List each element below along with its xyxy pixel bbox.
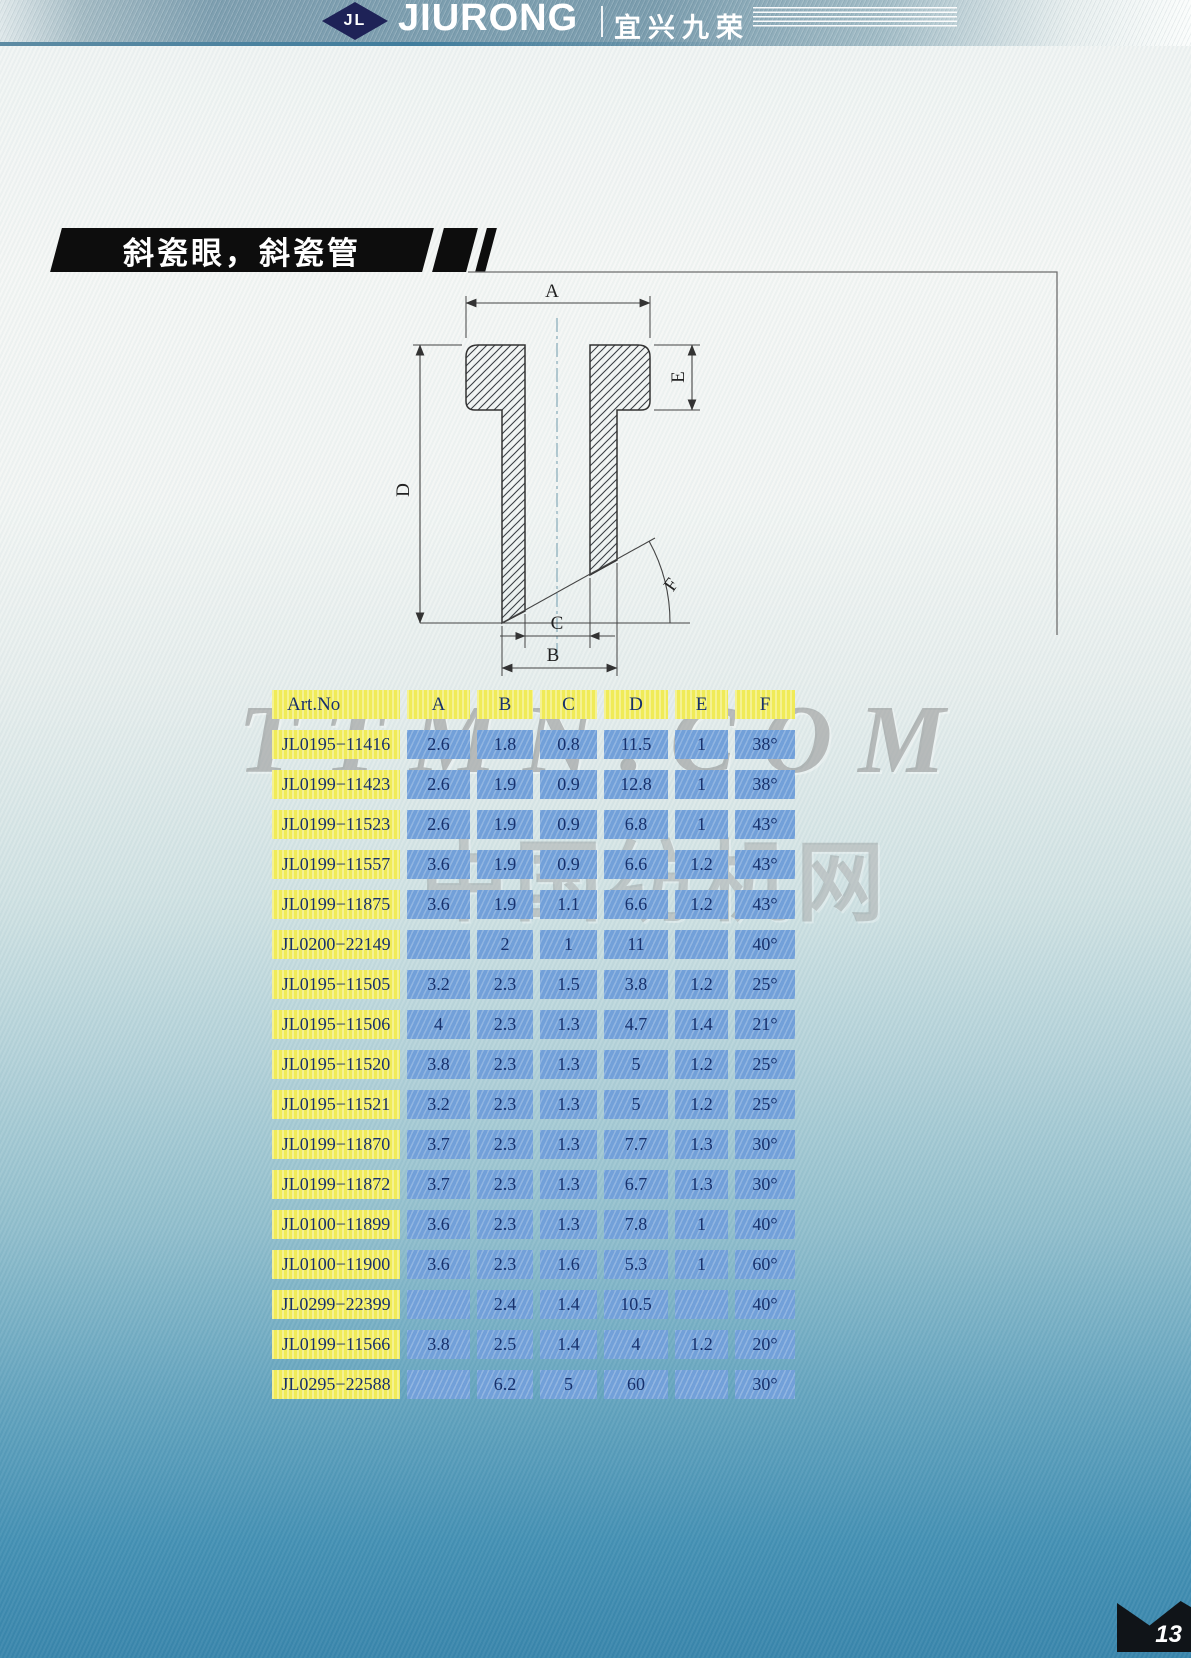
value-cell: 30° bbox=[735, 1370, 795, 1399]
value-cell: 2.6 bbox=[407, 810, 470, 839]
value-cell: 2.3 bbox=[477, 970, 533, 999]
value-cell: 25° bbox=[735, 1050, 795, 1079]
value-cell: 7.8 bbox=[604, 1210, 668, 1239]
value-cell: 2.6 bbox=[407, 770, 470, 799]
value-cell: 20° bbox=[735, 1330, 795, 1359]
column-header-b: B bbox=[477, 690, 533, 719]
value-cell bbox=[675, 1370, 728, 1399]
value-cell: 4 bbox=[604, 1330, 668, 1359]
dim-label-b: B bbox=[547, 645, 560, 666]
artno-cell: JL0199−11423 bbox=[272, 770, 400, 799]
dim-label-a: A bbox=[545, 281, 559, 302]
artno-cell: JL0100−11900 bbox=[272, 1250, 400, 1279]
value-cell: 2.6 bbox=[407, 730, 470, 759]
artno-cell: JL0199−11872 bbox=[272, 1170, 400, 1199]
artno-cell: JL0100−11899 bbox=[272, 1210, 400, 1239]
column-header-d: D bbox=[604, 690, 668, 719]
value-cell: 1.9 bbox=[477, 810, 533, 839]
value-cell: 2.5 bbox=[477, 1330, 533, 1359]
value-cell: 2.3 bbox=[477, 1210, 533, 1239]
value-cell: 2.3 bbox=[477, 1170, 533, 1199]
value-cell: 5 bbox=[604, 1050, 668, 1079]
column-header-c: C bbox=[540, 690, 597, 719]
value-cell: 0.9 bbox=[540, 850, 597, 879]
dim-label-c: C bbox=[551, 613, 564, 634]
page-number: 13 bbox=[1155, 1621, 1182, 1649]
value-cell: 6.7 bbox=[604, 1170, 668, 1199]
value-cell: 1.2 bbox=[675, 850, 728, 879]
artno-cell: JL0199−11523 bbox=[272, 810, 400, 839]
value-cell: 60 bbox=[604, 1370, 668, 1399]
value-cell bbox=[407, 1370, 470, 1399]
value-cell: 1.3 bbox=[540, 1130, 597, 1159]
value-cell: 2.3 bbox=[477, 1010, 533, 1039]
value-cell: 6.6 bbox=[604, 850, 668, 879]
value-cell: 6.2 bbox=[477, 1370, 533, 1399]
value-cell: 1.1 bbox=[540, 890, 597, 919]
value-cell: 11.5 bbox=[604, 730, 668, 759]
value-cell: 1.3 bbox=[675, 1170, 728, 1199]
artno-cell: JL0199−11875 bbox=[272, 890, 400, 919]
value-cell: 1.9 bbox=[477, 850, 533, 879]
value-cell: 3.7 bbox=[407, 1130, 470, 1159]
value-cell: 4.7 bbox=[604, 1010, 668, 1039]
value-cell: 10.5 bbox=[604, 1290, 668, 1319]
value-cell: 40° bbox=[735, 1290, 795, 1319]
artno-cell: JL0199−11870 bbox=[272, 1130, 400, 1159]
value-cell: 5.3 bbox=[604, 1250, 668, 1279]
value-cell: 0.9 bbox=[540, 770, 597, 799]
frame-line bbox=[468, 272, 1057, 635]
eyelet-section-right bbox=[590, 345, 650, 575]
value-cell: 1 bbox=[675, 1250, 728, 1279]
value-cell: 3.6 bbox=[407, 1250, 470, 1279]
value-cell: 3.8 bbox=[604, 970, 668, 999]
value-cell: 3.7 bbox=[407, 1170, 470, 1199]
value-cell: 5 bbox=[604, 1090, 668, 1119]
value-cell: 0.9 bbox=[540, 810, 597, 839]
value-cell: 6.6 bbox=[604, 890, 668, 919]
value-cell: 2.3 bbox=[477, 1250, 533, 1279]
value-cell: 40° bbox=[735, 930, 795, 959]
dim-label-d: D bbox=[393, 483, 414, 497]
value-cell: 3.6 bbox=[407, 890, 470, 919]
value-cell: 1 bbox=[675, 1210, 728, 1239]
value-cell: 2.3 bbox=[477, 1130, 533, 1159]
value-cell: 5 bbox=[540, 1370, 597, 1399]
value-cell: 1.9 bbox=[477, 890, 533, 919]
value-cell: 21° bbox=[735, 1010, 795, 1039]
value-cell: 3.2 bbox=[407, 970, 470, 999]
value-cell: 25° bbox=[735, 1090, 795, 1119]
dim-label-e: E bbox=[668, 371, 689, 383]
value-cell: 43° bbox=[735, 810, 795, 839]
value-cell: 43° bbox=[735, 850, 795, 879]
dim-label-f: F bbox=[660, 574, 683, 595]
value-cell: 2.3 bbox=[477, 1090, 533, 1119]
value-cell: 1 bbox=[675, 730, 728, 759]
value-cell: 38° bbox=[735, 770, 795, 799]
artno-cell: JL0195−11505 bbox=[272, 970, 400, 999]
value-cell: 2 bbox=[477, 930, 533, 959]
eyelet-section-left bbox=[466, 345, 525, 623]
value-cell bbox=[675, 930, 728, 959]
value-cell: 1.2 bbox=[675, 1090, 728, 1119]
artno-cell: JL0195−11521 bbox=[272, 1090, 400, 1119]
spec-table: Art.NoABCDEFJL0195−114162.61.80.811.5138… bbox=[272, 690, 795, 1399]
value-cell: 1.4 bbox=[540, 1330, 597, 1359]
value-cell: 11 bbox=[604, 930, 668, 959]
value-cell: 1.9 bbox=[477, 770, 533, 799]
value-cell: 3.6 bbox=[407, 1210, 470, 1239]
artno-cell: JL0199−11557 bbox=[272, 850, 400, 879]
artno-cell: JL0195−11506 bbox=[272, 1010, 400, 1039]
column-header-f: F bbox=[735, 690, 795, 719]
value-cell: 1.3 bbox=[540, 1090, 597, 1119]
value-cell: 2.3 bbox=[477, 1050, 533, 1079]
artno-cell: JL0200−22149 bbox=[272, 930, 400, 959]
value-cell: 3.8 bbox=[407, 1050, 470, 1079]
value-cell: 6.8 bbox=[604, 810, 668, 839]
value-cell bbox=[407, 930, 470, 959]
value-cell: 4 bbox=[407, 1010, 470, 1039]
value-cell: 1.2 bbox=[675, 890, 728, 919]
value-cell: 25° bbox=[735, 970, 795, 999]
artno-cell: JL0295−22588 bbox=[272, 1370, 400, 1399]
technical-drawing: F A D E C B bbox=[0, 0, 1191, 740]
artno-cell: JL0195−11416 bbox=[272, 730, 400, 759]
value-cell: 1 bbox=[675, 770, 728, 799]
artno-cell: JL0195−11520 bbox=[272, 1050, 400, 1079]
value-cell: 1.5 bbox=[540, 970, 597, 999]
value-cell: 1.3 bbox=[540, 1050, 597, 1079]
value-cell bbox=[675, 1290, 728, 1319]
value-cell: 3.2 bbox=[407, 1090, 470, 1119]
value-cell: 1.3 bbox=[540, 1210, 597, 1239]
value-cell: 1.3 bbox=[675, 1130, 728, 1159]
value-cell: 1.3 bbox=[540, 1170, 597, 1199]
column-header-a: A bbox=[407, 690, 470, 719]
value-cell: 1.6 bbox=[540, 1250, 597, 1279]
column-header-e: E bbox=[675, 690, 728, 719]
catalog-page: JL JIURONG 宜兴九荣 斜瓷眼，斜瓷管 bbox=[0, 0, 1191, 1658]
value-cell bbox=[407, 1290, 470, 1319]
value-cell: 3.8 bbox=[407, 1330, 470, 1359]
value-cell: 0.8 bbox=[540, 730, 597, 759]
value-cell: 1 bbox=[675, 810, 728, 839]
value-cell: 38° bbox=[735, 730, 795, 759]
value-cell: 30° bbox=[735, 1130, 795, 1159]
value-cell: 30° bbox=[735, 1170, 795, 1199]
value-cell: 40° bbox=[735, 1210, 795, 1239]
value-cell: 1.4 bbox=[540, 1290, 597, 1319]
value-cell: 1.3 bbox=[540, 1010, 597, 1039]
value-cell: 7.7 bbox=[604, 1130, 668, 1159]
value-cell: 1.2 bbox=[675, 970, 728, 999]
value-cell: 60° bbox=[735, 1250, 795, 1279]
value-cell: 1.4 bbox=[675, 1010, 728, 1039]
value-cell: 3.6 bbox=[407, 850, 470, 879]
value-cell: 1.2 bbox=[675, 1330, 728, 1359]
value-cell: 1.8 bbox=[477, 730, 533, 759]
value-cell: 43° bbox=[735, 890, 795, 919]
value-cell: 2.4 bbox=[477, 1290, 533, 1319]
artno-cell: JL0199−11566 bbox=[272, 1330, 400, 1359]
value-cell: 12.8 bbox=[604, 770, 668, 799]
value-cell: 1.2 bbox=[675, 1050, 728, 1079]
page-number-flag: 13 bbox=[1117, 1601, 1191, 1652]
column-header-artno: Art.No bbox=[272, 690, 400, 719]
artno-cell: JL0299−22399 bbox=[272, 1290, 400, 1319]
value-cell: 1 bbox=[540, 930, 597, 959]
